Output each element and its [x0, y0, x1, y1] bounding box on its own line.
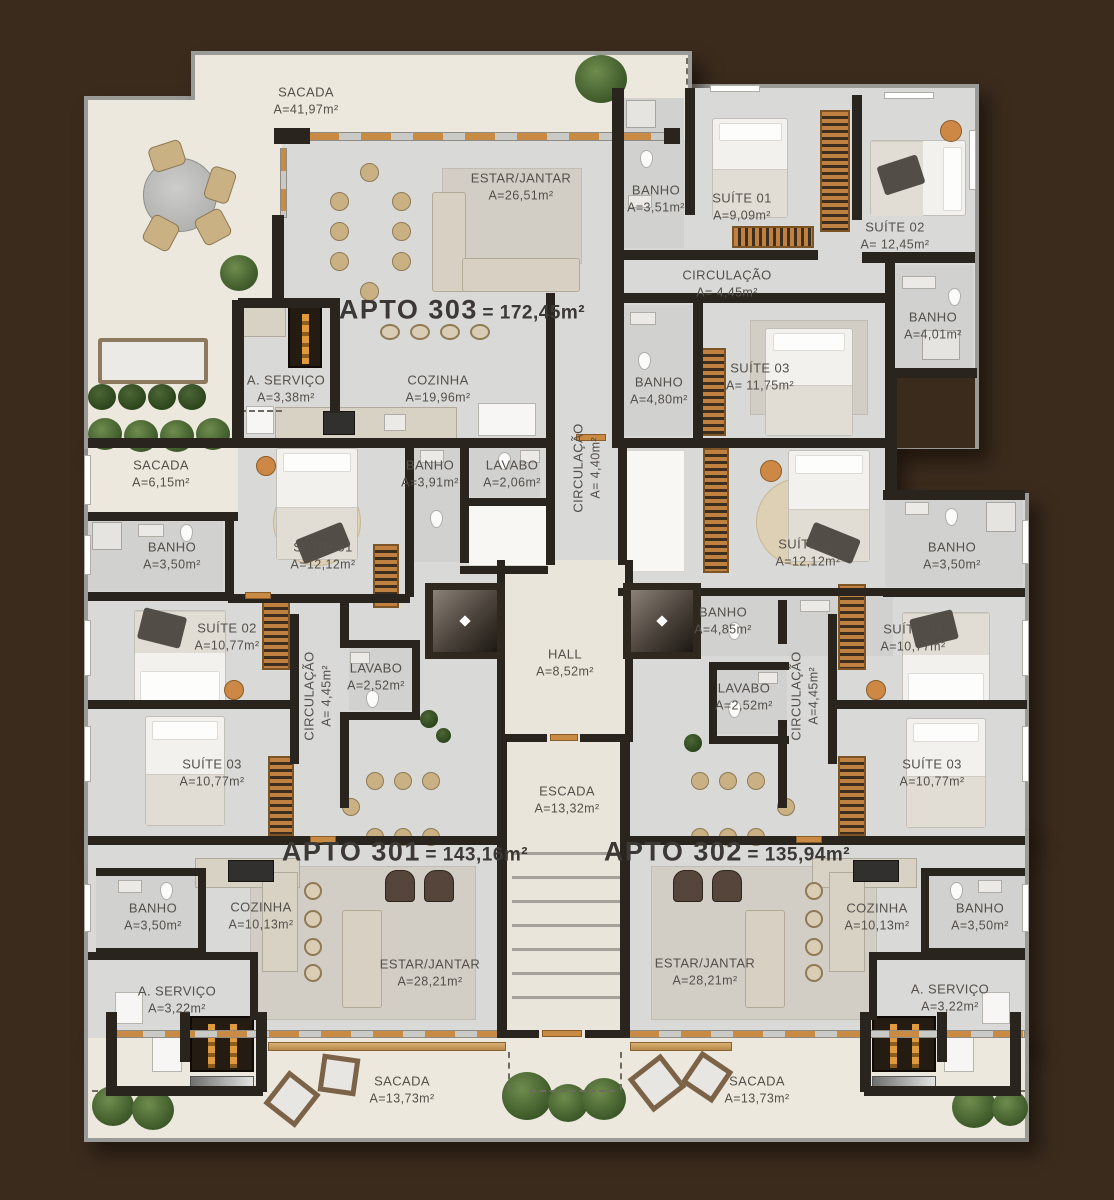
stool: [304, 938, 322, 956]
stairs-tread: [512, 900, 622, 903]
sink: [902, 276, 936, 289]
room-label-estar-302: ESTAR/JANTARA=28,21m²: [655, 955, 755, 988]
room-label-servico-303: A. SERVIÇOA=3,38m²: [247, 372, 325, 405]
room-label-suite3-302: SUÍTE 03A=10,77m²: [899, 756, 964, 789]
wardrobe: [262, 594, 290, 670]
room-label-sacada-lateral: SACADAA=6,15m²: [132, 457, 190, 490]
stairs-tread: [512, 876, 622, 879]
room-label-estar-301: ESTAR/JANTARA=28,21m²: [380, 956, 480, 989]
room-label-banho-303a: BANHOA=3,51m²: [627, 182, 685, 215]
stairs-tread: [512, 972, 622, 975]
planter-plant: [148, 384, 176, 410]
wardrobe: [820, 110, 850, 232]
wardrobe: [703, 448, 729, 573]
armchair: [424, 870, 454, 902]
dining-chair: [422, 772, 440, 790]
indoor-plant: [684, 734, 702, 752]
shower: [986, 502, 1016, 532]
wardrobe: [700, 348, 726, 436]
stool: [805, 938, 823, 956]
indoor-plant: [420, 710, 438, 728]
boundary-dashed: [508, 1052, 510, 1090]
room-label-banho-391: BANHOA=3,91m²: [401, 457, 459, 490]
stove: [853, 860, 899, 882]
room-label-suite1-303: SUÍTE 01A=9,09m²: [712, 190, 772, 223]
room-label-servico-301: A. SERVIÇOA=3,22m²: [138, 983, 216, 1016]
stairs-tread: [512, 924, 622, 927]
stool: [304, 910, 322, 928]
stool: [470, 324, 490, 340]
fridge: [478, 403, 536, 436]
indoor-plant: [436, 728, 451, 743]
dining-chair: [330, 222, 349, 241]
door-threshold: [245, 592, 271, 599]
door-threshold: [550, 734, 578, 741]
light-shaft: [625, 450, 685, 572]
door-threshold: [542, 1030, 582, 1037]
service-counter: [240, 307, 286, 337]
dining-chair: [719, 772, 737, 790]
stool: [304, 882, 322, 900]
balcony-plant: [132, 1090, 174, 1130]
kitchen-sink: [384, 414, 406, 431]
balcony-bench: [630, 1042, 732, 1051]
pot: [224, 680, 244, 700]
dining-chair: [366, 772, 384, 790]
planter-plant: [88, 384, 116, 410]
room-label-banho-350-a: BANHOA=3,50m²: [143, 539, 201, 572]
elevator: [425, 583, 505, 659]
apartment-title-302: APTO 302 = 135,94m²: [604, 837, 850, 868]
light-shaft: [468, 504, 548, 566]
pot: [760, 460, 782, 482]
stool: [805, 964, 823, 982]
pot: [256, 456, 276, 476]
stool: [410, 324, 430, 340]
building-notch: [897, 378, 975, 448]
dining-chair: [330, 192, 349, 211]
sofa: [342, 910, 382, 1008]
room-label-banho-350-c: BANHOA=3,50m²: [124, 900, 182, 933]
apartment-title-301: APTO 301 = 143,16m²: [282, 837, 528, 868]
dining-chair: [392, 252, 411, 271]
dining-chair: [392, 222, 411, 241]
shower: [626, 100, 656, 128]
room-label-suite3-303: SUÍTE 03A= 11,75m²: [726, 360, 794, 393]
sink: [138, 524, 164, 537]
room-label-servico-302: A. SERVIÇOA=3,22m²: [911, 981, 989, 1014]
barbecue: [872, 1016, 936, 1072]
armchair: [712, 870, 742, 902]
dining-chair: [394, 772, 412, 790]
boundary-dashed: [530, 1090, 615, 1092]
planter-plant: [118, 384, 146, 410]
sink: [118, 880, 142, 893]
terrace-sofa: [98, 338, 208, 384]
room-label-circ-303: CIRCULAÇÃOA= 4,45m²: [682, 267, 771, 300]
balcony-bench: [268, 1042, 506, 1051]
wardrobe: [838, 756, 866, 836]
pantry-cabinet: [288, 306, 322, 368]
room-label-cozinha-301: COZINHAA=10,13m²: [228, 899, 293, 932]
stool: [380, 324, 400, 340]
room-label-banho-485: BANHOA=4,85m²: [694, 604, 752, 637]
balcony-railing-left: [112, 1030, 505, 1038]
dining-chair: [747, 772, 765, 790]
dining-chair: [330, 252, 349, 271]
room-label-suite2-303: SUÍTE 02A= 12,45m²: [861, 219, 930, 252]
floor-plan: SACADAA=41,97m² ESTAR/JANTARA=26,51m² BA…: [0, 0, 1114, 1200]
room-label-banho-350-d: BANHOA=3,50m²: [951, 900, 1009, 933]
room-label-sacada-302: SACADAA=13,73m²: [724, 1073, 789, 1106]
room-label-circ-301: CIRCULAÇÃOA= 4,45m²: [301, 651, 334, 740]
barbecue: [190, 1016, 254, 1072]
room-label-hall: HALLA=8,52m²: [536, 646, 594, 679]
stairs-tread: [512, 948, 622, 951]
room-label-circ-302: CIRCULAÇÃOA=4,45m²: [788, 651, 821, 740]
armchair: [673, 870, 703, 902]
room-label-estar-303: ESTAR/JANTARA=26,51m²: [471, 170, 571, 203]
room-label-cozinha-302: COZINHAA=10,13m²: [844, 900, 909, 933]
terrace-railing-side: [280, 148, 287, 218]
balcony-railing-right: [628, 1030, 1025, 1038]
sofa: [462, 258, 580, 292]
balcony-armchair: [318, 1054, 361, 1097]
room-label-suite2-302: SUÍTE 02A=10,77m²: [880, 621, 945, 654]
wardrobe: [732, 226, 814, 248]
pot: [940, 120, 962, 142]
stove: [323, 411, 355, 435]
stairs-tread: [512, 996, 622, 999]
terrace-plant: [220, 255, 258, 291]
pot: [866, 680, 886, 700]
room-label-circ-440: CIRCULAÇÃOA= 4,40m²: [570, 423, 603, 512]
room-label-cozinha-303: COZINHAA=19,96m²: [405, 372, 470, 405]
room-label-banho-350-b: BANHOA=3,50m²: [923, 539, 981, 572]
room-label-sacada-301: SACADAA=13,73m²: [369, 1073, 434, 1106]
dining-chair: [691, 772, 709, 790]
armchair: [385, 870, 415, 902]
shower: [92, 522, 122, 550]
room-label-lavabo-302: LAVABOA=2,52m²: [715, 680, 773, 713]
wardrobe: [268, 756, 294, 836]
stool: [440, 324, 460, 340]
room-label-lavabo-206: LAVABOA=2,06m²: [483, 457, 541, 490]
room-label-escada: ESCADAA=13,32m²: [534, 783, 599, 816]
stool: [304, 964, 322, 982]
planter-plant: [178, 384, 206, 410]
elevator: [623, 583, 701, 659]
stove: [228, 860, 274, 882]
room-label-lavabo-301: LAVABOA=2,52m²: [347, 660, 405, 693]
room-label-sacada-terraco: SACADAA=41,97m²: [273, 84, 338, 117]
room-label-suite1-302: SUÍTE 01A=12,12m²: [775, 536, 840, 569]
dining-chair: [392, 192, 411, 211]
boundary-dashed: [620, 1052, 622, 1090]
room-label-suite3-301: SUÍTE 03A=10,77m²: [179, 756, 244, 789]
sink: [978, 880, 1002, 893]
apartment-title-303: APTO 303 = 172,45m²: [339, 295, 585, 326]
stool: [805, 910, 823, 928]
room-label-suite2-301: SUÍTE 02A=10,77m²: [194, 620, 259, 653]
sink: [800, 600, 830, 612]
room-label-banho-303b: BANHOA=4,01m²: [904, 309, 962, 342]
dining-chair: [360, 163, 379, 182]
room-label-suite1-301: SUÍTE 01A=12,12m²: [290, 539, 355, 572]
wardrobe: [838, 584, 866, 670]
sink: [630, 312, 656, 325]
sofa: [432, 192, 466, 292]
stool: [805, 882, 823, 900]
boundary-dashed: [240, 410, 282, 412]
room-label-banho-303c: BANHOA=4,80m²: [630, 374, 688, 407]
sink: [905, 502, 929, 515]
kitchen-counter: [275, 407, 457, 439]
